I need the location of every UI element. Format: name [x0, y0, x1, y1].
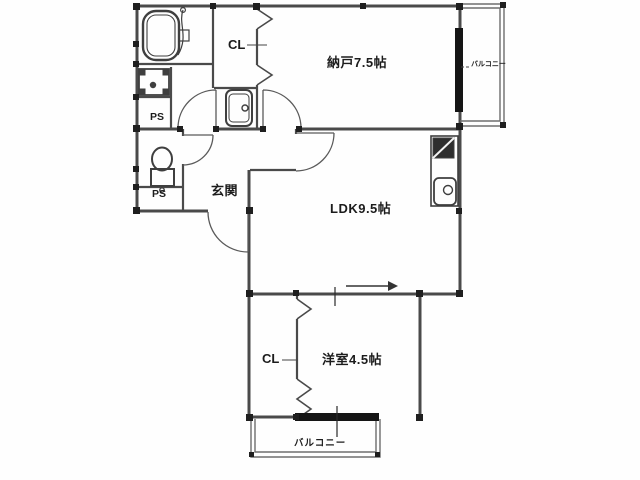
pan-corner: [163, 70, 168, 75]
toilet-bowl-icon: [152, 148, 172, 171]
label-pipe-space-upper: PS: [150, 112, 164, 123]
folding-door-icon: [297, 299, 311, 319]
floor-plan: 納戸7.5帖 LDK9.5帖 洋室4.5帖 玄関 CL CL PS PS バルコ…: [0, 0, 640, 480]
entrance-door-icon: [208, 212, 248, 252]
wall-junctions: [133, 2, 506, 457]
folding-door-icon: [257, 9, 272, 29]
label-balcony-bottom: バルコニー: [294, 439, 346, 449]
toilet-tank-icon: [151, 169, 174, 186]
label-pipe-space-lower: PS: [152, 189, 166, 200]
drain-icon: [150, 82, 156, 88]
arrow-head-icon: [388, 281, 398, 291]
direction-arrow: [346, 281, 398, 291]
kitchen-unit: [431, 136, 458, 206]
windows: [295, 28, 463, 437]
storage-door-icon: [263, 90, 301, 128]
pan-corner: [140, 89, 145, 94]
label-closet-upper: CL: [228, 38, 245, 51]
balcony-outlines: [251, 4, 504, 457]
bathtub-inner: [147, 15, 175, 56]
washbasin-unit: [226, 90, 252, 126]
washbasin-inner: [229, 94, 249, 122]
washroom-door-icon: [178, 90, 216, 128]
sink-faucet-icon: [444, 186, 453, 195]
toilet-fixture: [151, 148, 174, 193]
window-storage-balcony: [455, 28, 463, 112]
toilet-door-icon: [183, 135, 213, 165]
label-western-room: 洋室4.5帖: [322, 353, 382, 366]
pan-corner: [140, 70, 145, 75]
ldk-door-icon: [296, 133, 334, 171]
bathroom-unit: [143, 8, 189, 60]
label-entrance: 玄関: [211, 184, 238, 197]
label-closet-lower: CL: [262, 352, 279, 365]
label-balcony-right: バルコニー: [471, 61, 506, 68]
washer-pan: [139, 69, 169, 95]
washbasin-faucet-icon: [242, 105, 248, 111]
bath-faucet-icon: [179, 30, 189, 41]
floor-plan-drawing: [0, 0, 640, 480]
label-ldk: LDK9.5帖: [330, 202, 391, 215]
pan-corner: [163, 89, 168, 94]
label-storage-room: 納戸7.5帖: [327, 56, 387, 69]
folding-door-icon: [257, 65, 272, 85]
